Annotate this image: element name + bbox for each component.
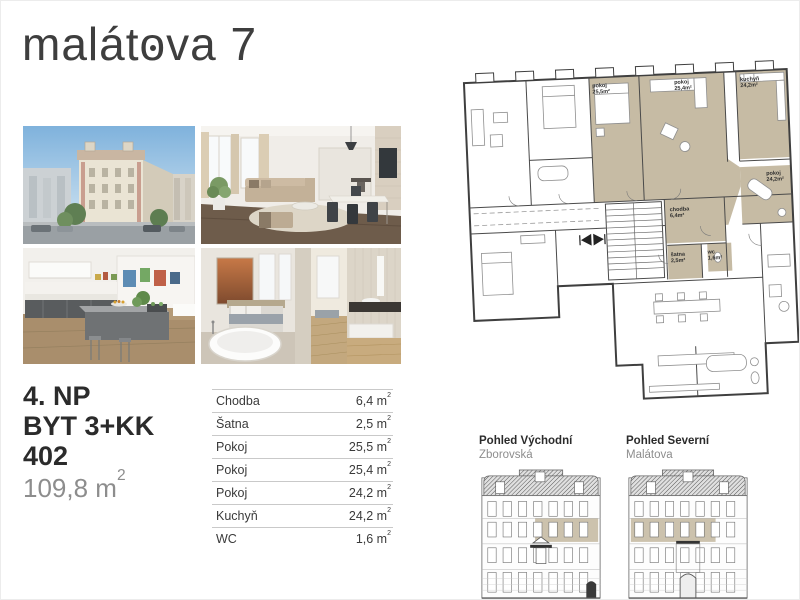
table-row: Kuchyň24,2 m2: [212, 505, 393, 528]
table-row: Pokoj24,2 m2: [212, 482, 393, 505]
plan-label: šatna2,5m²: [671, 252, 687, 265]
photo-kitchen: [23, 248, 195, 364]
elevation-subtitle: Malátova: [626, 448, 756, 462]
table-row: WC1,6 m2: [212, 528, 393, 551]
room-name: Kuchyň: [212, 505, 306, 528]
plan-label: kuchyň24,2m²: [740, 76, 760, 89]
unit-info: 4. NP BYT 3+KK 402 109,8 m2: [23, 381, 154, 503]
entry-arrows: [580, 234, 605, 245]
room-name: Chodba: [212, 390, 306, 413]
room-area: 24,2 m2: [306, 482, 393, 505]
unit-floor: 4. NP: [23, 381, 154, 411]
room-name: Pokoj: [212, 436, 306, 459]
unit-total-area: 109,8 m2: [23, 474, 154, 503]
table-row: Chodba6,4 m2: [212, 390, 393, 413]
room-name: Šatna: [212, 413, 306, 436]
room-name: Pokoj: [212, 482, 306, 505]
photo-building-exterior: [23, 126, 195, 244]
table-row: Pokoj25,5 m2: [212, 436, 393, 459]
room-area-table: Chodba6,4 m2 Šatna2,5 m2 Pokoj25,5 m2 Po…: [212, 389, 393, 550]
elevation-north-drawing: [626, 468, 750, 600]
table-row: Šatna2,5 m2: [212, 413, 393, 436]
floor-plan: pokoj25,5m² pokoj25,4m² kuchyň24,2m² pok…: [461, 51, 800, 429]
room-name: WC: [212, 528, 306, 551]
page-title: malátova 7: [22, 17, 257, 71]
room-area: 1,6 m2: [306, 528, 393, 551]
photo-living-room: [201, 126, 401, 244]
living-room-illustration: [201, 126, 401, 244]
bathroom-illustration: [201, 248, 401, 364]
title-part-2: va 7: [166, 18, 257, 70]
kitchen-illustration: [23, 248, 195, 364]
floor-plan-drawing: pokoj25,5m² pokoj25,4m² kuchyň24,2m² pok…: [461, 51, 800, 429]
elevation-east: Pohled Východní Zborovská: [479, 434, 609, 600]
building-exterior-illustration: [23, 126, 195, 244]
elevation-title: Pohled Severní: [626, 434, 756, 448]
staircase: [605, 202, 664, 280]
room-area: 25,5 m2: [306, 436, 393, 459]
room-area: 24,2 m2: [306, 505, 393, 528]
elevation-subtitle: Zborovská: [479, 448, 609, 462]
elevation-title: Pohled Východní: [479, 434, 609, 448]
photo-bathroom: [201, 248, 401, 364]
room-area: 2,5 m2: [306, 413, 393, 436]
brochure-page: malátova 7: [0, 0, 800, 600]
room-name: Pokoj: [212, 459, 306, 482]
brand-o-mark: o: [139, 17, 166, 71]
title-part-1: malát: [22, 18, 139, 70]
room-area: 25,4 m2: [306, 459, 393, 482]
elevation-east-drawing: [479, 468, 603, 600]
room-area: 6,4 m2: [306, 390, 393, 413]
unit-layout: BYT 3+KK: [23, 411, 154, 441]
table-row: Pokoj25,4 m2: [212, 459, 393, 482]
elevation-north: Pohled Severní Malátova: [626, 434, 756, 600]
unit-number: 402: [23, 441, 154, 471]
